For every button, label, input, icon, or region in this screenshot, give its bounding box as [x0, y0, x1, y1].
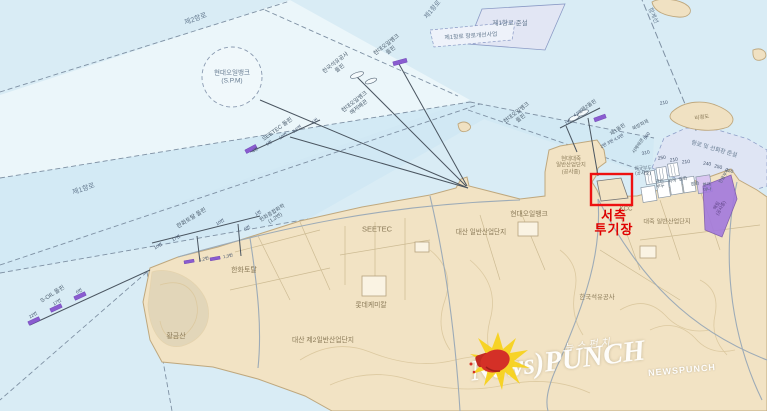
- spm-anchorage-circle: [202, 47, 262, 107]
- small-island: [753, 49, 766, 60]
- watermark-small-text: NEWSPUNCH: [648, 362, 717, 378]
- port-chart-map: 제2항로제1항로제1항로 준설제1항로 항로개선사업항계선현대오일뱅크 (S.P…: [0, 0, 767, 411]
- news-punch-watermark: 뉴스펀치 News)PUNCH NEWSPUNCH: [468, 328, 767, 411]
- dump-site-label: 서측 투기장: [584, 209, 644, 238]
- islet: [458, 122, 471, 132]
- dump-site-label-line2: 투기장: [595, 222, 634, 237]
- boxing-glove-icon: [468, 328, 532, 396]
- dump-site-label-line1: 서측: [601, 208, 627, 223]
